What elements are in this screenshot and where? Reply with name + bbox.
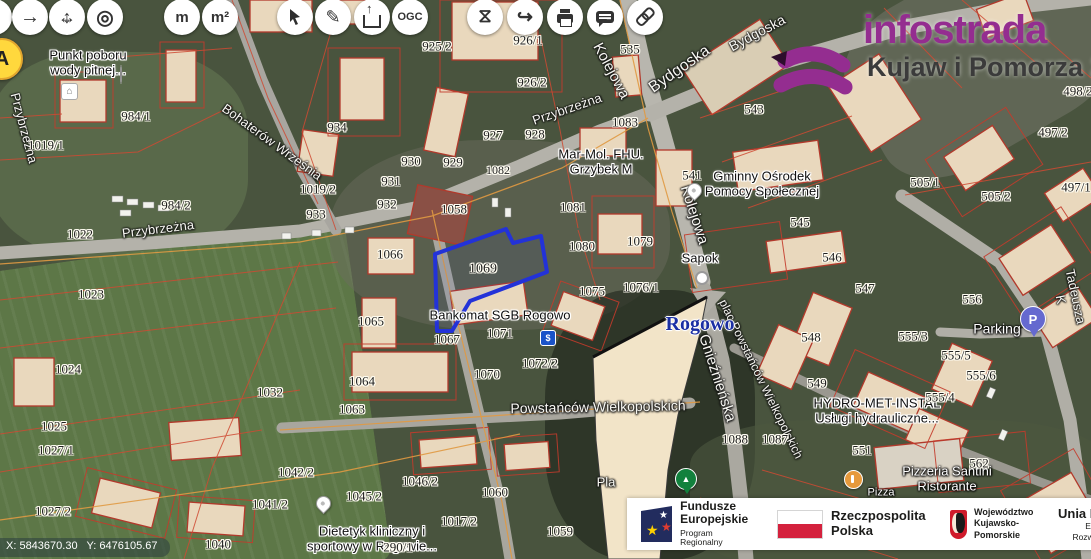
marker-a-label: A	[0, 48, 9, 71]
share-icon: ↑	[363, 15, 381, 28]
fe-text: Fundusze Europejskie Program Regionalny	[680, 500, 751, 548]
select-pointer-button[interactable]	[277, 0, 313, 35]
pin-icon	[313, 493, 334, 514]
pin-icon	[684, 180, 705, 201]
printer-icon	[557, 14, 573, 23]
dot-icon	[120, 65, 122, 84]
cursor-icon	[287, 8, 303, 26]
link-icon	[631, 3, 659, 31]
history-button[interactable]: ⧖	[467, 0, 503, 35]
feedback-button[interactable]	[587, 0, 623, 35]
coat-of-arms-icon	[950, 510, 967, 539]
share-link-button[interactable]	[627, 0, 663, 35]
water-point-icon[interactable]: ⌂	[61, 83, 78, 100]
sapok-marker[interactable]	[695, 271, 709, 285]
map-canvas[interactable]: PrzybrzeżnaPrzybrzeżnaPrzybrzeżnaKolejow…	[0, 0, 1091, 559]
center-target-button[interactable]: ◎	[87, 0, 123, 35]
ogc-icon: OGC	[397, 11, 422, 23]
fe-flag-icon: ★★★	[641, 506, 672, 542]
dietetyk-pin[interactable]	[316, 496, 331, 511]
buildings	[14, 0, 1091, 553]
dollar-icon: $	[545, 333, 550, 343]
voivodeship-text: WojewództwoKujawsko-Pomorskie	[974, 507, 1040, 541]
fundusze-europejskie-logo: ★★★ Fundusze Europejskie Program Regiona…	[641, 500, 751, 548]
tree-icon: ▲	[682, 474, 691, 484]
poi-dot-marker[interactable]	[120, 66, 122, 84]
parking-icon: P	[1029, 312, 1038, 327]
voivodeship-logo: WojewództwoKujawsko-Pomorskie	[950, 507, 1040, 541]
measure-length-icon: m	[175, 9, 188, 26]
export-button[interactable]: ↑	[354, 0, 390, 35]
forward-arrow-icon: →	[20, 7, 40, 27]
dot-icon	[695, 271, 709, 285]
poland-logo: RzeczpospolitaPolska	[777, 509, 926, 538]
pan-button[interactable]: ↔↕	[49, 0, 85, 35]
pencil-icon: ✎	[325, 7, 340, 28]
target-icon: ◎	[96, 5, 113, 30]
poi-pin-541[interactable]	[687, 183, 702, 198]
eu-union-text: Unia Europejska Europejski FunduszRozwoj…	[1058, 506, 1091, 542]
pan-icon: ↔↕	[56, 6, 78, 28]
comment-icon	[596, 11, 614, 23]
fe-subtext: Program Regionalny	[680, 529, 751, 548]
map-vector-layer	[0, 0, 1091, 559]
poland-text: RzeczpospolitaPolska	[831, 509, 926, 538]
redo-arrow-icon: ↪	[517, 6, 533, 29]
park-tree-pin[interactable]: ▲	[675, 468, 697, 490]
back-arrow-icon: →	[0, 7, 4, 27]
restaurant-icon[interactable]	[844, 470, 863, 489]
forward-button[interactable]: →	[12, 0, 48, 35]
building-icon: ⌂	[66, 86, 72, 97]
coordinates-readout: X: 5843670.30 Y: 6476105.67	[0, 538, 170, 557]
atm-icon[interactable]: $	[540, 330, 556, 346]
measure-length-button[interactable]: m	[164, 0, 200, 35]
measure-area-button[interactable]: m²	[202, 0, 238, 35]
print-button[interactable]	[547, 0, 583, 35]
hourglass-icon: ⧖	[478, 6, 491, 28]
measure-area-icon: m²	[211, 9, 229, 26]
ogc-services-button[interactable]: OGC	[392, 0, 428, 35]
draw-button[interactable]: ✎	[315, 0, 351, 35]
parking-pin[interactable]: P	[1020, 306, 1046, 332]
poland-flag-icon	[777, 510, 823, 539]
redo-button[interactable]: ↪	[507, 0, 543, 35]
eu-funding-panel: ★★★ Fundusze Europejskie Program Regiona…	[627, 498, 1091, 550]
